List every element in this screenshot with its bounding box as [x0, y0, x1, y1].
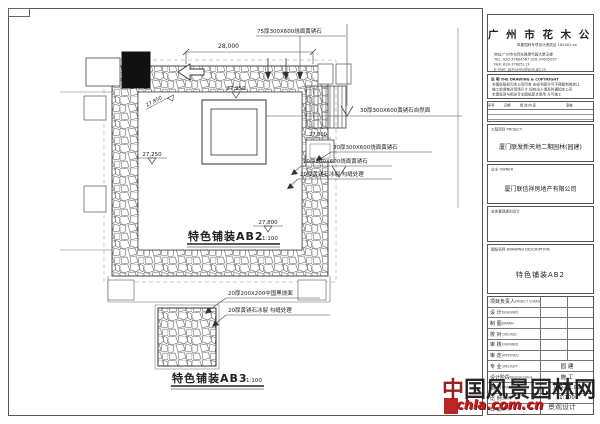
svg-text:20厚黄锈石冰裂 勾缝处理: 20厚黄锈石冰裂 勾缝处理 [300, 170, 364, 178]
title-ab2-scale: 1:100 [262, 236, 278, 242]
sig-label: 制 图 [490, 320, 502, 327]
sig-label: 图 号 [490, 384, 502, 391]
sig-row-scale: 比 例SCALE 1:100 [488, 393, 593, 404]
sig-value-scale: 1:100 [541, 394, 593, 404]
plan-canvas: 28,000 75厚300X600烧面黄锈石 30厚300X600黄锈石自然面 … [0, 0, 484, 424]
svg-text:特色铺装AB2: 特色铺装AB2 [188, 229, 264, 243]
sig-blank [567, 308, 594, 318]
sig-blank [567, 351, 594, 361]
sig-row-approved: 审 定APPROVED [488, 350, 593, 361]
svg-text:27,950: 27,950 [226, 86, 246, 92]
sig-value [541, 351, 567, 361]
company-qualification: 风景园林专项设计资质证 182401-sa [517, 44, 564, 47]
sig-value [541, 318, 567, 328]
company-email: E-mail: gzhuamu@pub.gd.cn [494, 68, 539, 70]
central-square [202, 100, 266, 164]
drawing-name-box: 图纸名称 DRAWING DESCRIPTION 特色铺装AB2 [487, 244, 594, 294]
owner-name: 厦门联信祥房地产有限公司 [488, 184, 593, 193]
sig-label-en: DATE [502, 407, 510, 410]
drawing-name: 特色铺装AB2 [488, 270, 593, 280]
sig-row-examined: 审 核EXAMINED [488, 339, 593, 350]
company-name: 广 州 市 花 木 公 司 [488, 27, 593, 42]
dim-28000-label: 28,000 [218, 43, 239, 50]
sig-row-drawing-no: 图 号DRAWING No. JAD-12.01 [488, 382, 593, 393]
rev-col-content: 修 改 内 容 [520, 103, 538, 107]
rev-col-date: 日期 [504, 103, 510, 107]
sig-label-en: DESIGNED [502, 311, 518, 314]
rev-col-check: 审核 [566, 103, 572, 107]
steps-hatch [306, 86, 346, 128]
revision-header: 序号 日期 修 改 内 容 审核 [488, 102, 593, 110]
sig-value [541, 340, 567, 350]
annotation-b20-ice: 20厚黄锈石冰裂 勾缝处理 [212, 306, 330, 327]
sig-row-specialty: 专 业SPECIALTY 园 建 [488, 360, 593, 371]
company-tel: TEL: 020-37604567 020-37605057 [494, 58, 539, 60]
sig-label: 审 核 [490, 341, 502, 348]
sig-label-en: CHECKED [502, 332, 517, 335]
black-block [122, 52, 150, 88]
sig-label: 校 对 [490, 331, 502, 338]
sig-label-en: DESIGN STAGE [510, 375, 533, 378]
sig-label: 设计阶段 [490, 374, 510, 381]
svg-text:20厚黄锈石冰裂 勾缝处理: 20厚黄锈石冰裂 勾缝处理 [228, 306, 292, 314]
drawing-label: 图纸名称 DRAWING DESCRIPTION [491, 248, 537, 250]
project-label: 工程项目 PROJECT [491, 128, 537, 130]
sig-value [541, 297, 567, 307]
sig-blank [567, 297, 594, 307]
svg-text:27,800: 27,800 [258, 220, 278, 226]
company-address: 地址:广州市先烈东路翠竹园大厦五楼 [494, 53, 539, 55]
notes-box: 说 明 THE DRAWING & COPYRIGHT 本图纸版权归本公司所有 … [487, 74, 594, 99]
title-ab3-scale: 1:100 [246, 378, 262, 384]
sig-row-drawn: 制 图DRAWN [488, 317, 593, 328]
dimension-28000: 28,000 [183, 43, 316, 64]
sig-label-en: PROJECT CHARGE [515, 300, 541, 303]
sig-value-specialty: 园 建 [541, 361, 593, 371]
annotation-75-text: 75厚300X600烧面黄锈石 [257, 27, 322, 35]
notes-title: 说 明 THE DRAWING & COPYRIGHT [491, 78, 537, 80]
sig-blank [567, 318, 594, 328]
sig-label-en: DRAWING No. [502, 386, 523, 389]
sig-value-stage: 施 工 [541, 372, 593, 382]
project-name: 厦门联发新天地二期园林(园建) [488, 142, 593, 151]
sig-label: 日 期 [490, 406, 502, 413]
project-box: 工程项目 PROJECT 厦门联发新天地二期园林(园建) [487, 124, 594, 162]
planning-box: 总体景观规划设计 [487, 206, 594, 242]
note-line: 本图纸须与相关专业图纸配合使用 方可施工 [492, 93, 537, 95]
revision-table: 序号 日期 修 改 内 容 审核 [487, 101, 594, 122]
sig-label: 审 定 [490, 352, 502, 359]
sig-blank [567, 329, 594, 339]
svg-text:20厚300X600烧面黄锈石: 20厚300X600烧面黄锈石 [303, 157, 368, 165]
svg-text:30厚300X600烧面黄锈石: 30厚300X600烧面黄锈石 [333, 143, 398, 151]
note-line: 施工前请核对现场尺寸 如有出入请及时通知本公司 [492, 88, 537, 90]
svg-text:20厚200X200中国黑烧面: 20厚200X200中国黑烧面 [228, 289, 293, 297]
sig-label: 设 计 [490, 309, 502, 316]
sig-value-drawing-no: JAD-12.01 [541, 383, 593, 393]
sig-label-en: APPROVED [502, 354, 519, 357]
planning-label: 总体景观规划设计 [491, 210, 537, 212]
owner-box: 业主 OWNER 厦门联信祥房地产有限公司 [487, 164, 594, 204]
sig-label-en: SPECIALTY [502, 365, 518, 368]
detail-ab3 [155, 305, 219, 369]
drawing-sheet: 28,000 75厚300X600烧面黄锈石 30厚300X600黄锈石自然面 … [0, 0, 600, 424]
revision-empty-row [488, 120, 593, 122]
sig-label-en: DRAWN [502, 322, 514, 325]
sig-label: 比 例 [490, 395, 502, 402]
svg-text:特色铺装AB3: 特色铺装AB3 [172, 371, 248, 385]
svg-text:30厚300X600黄锈石自然面: 30厚300X600黄锈石自然面 [360, 106, 431, 114]
sig-row-project-charge: 项目负责人PROJECT CHARGE [488, 297, 593, 307]
sig-label: 专 业 [490, 363, 502, 370]
sig-label-en: SCALE [502, 397, 512, 400]
sig-blank [567, 340, 594, 350]
sig-row-date: 日 期DATE [488, 403, 593, 414]
sig-value [541, 404, 593, 414]
sig-label: 项目负责人 [490, 298, 515, 305]
svg-text:27,250: 27,250 [142, 152, 162, 158]
title-ab3: 特色铺装AB3 1:100 [171, 371, 264, 389]
owner-label: 业主 OWNER [491, 168, 537, 170]
sig-label-en: EXAMINED [502, 343, 518, 346]
rev-col-no: 序号 [488, 103, 494, 107]
sig-row-designed: 设 计DESIGNED [488, 307, 593, 318]
sig-row-design-stage: 设计阶段DESIGN STAGE 施 工 [488, 371, 593, 382]
note-line: 本图纸版权归本公司所有 未经书面许可不得复制或转让 [492, 83, 537, 85]
company-fax: FAX: 020-37605113 [494, 63, 539, 65]
signature-table: 项目负责人PROJECT CHARGE 设 计DESIGNED 制 图DRAWN… [487, 296, 594, 415]
sig-value [541, 308, 567, 318]
title-block: 广 州 市 花 木 公 司 风景园林专项设计资质证 182401-sa 地址:广… [482, 8, 600, 416]
sig-value [541, 329, 567, 339]
company-box: 广 州 市 花 木 公 司 风景园林专项设计资质证 182401-sa 地址:广… [487, 14, 594, 72]
sig-row-checked: 校 对CHECKED [488, 328, 593, 339]
svg-text:27,800: 27,800 [309, 132, 327, 138]
